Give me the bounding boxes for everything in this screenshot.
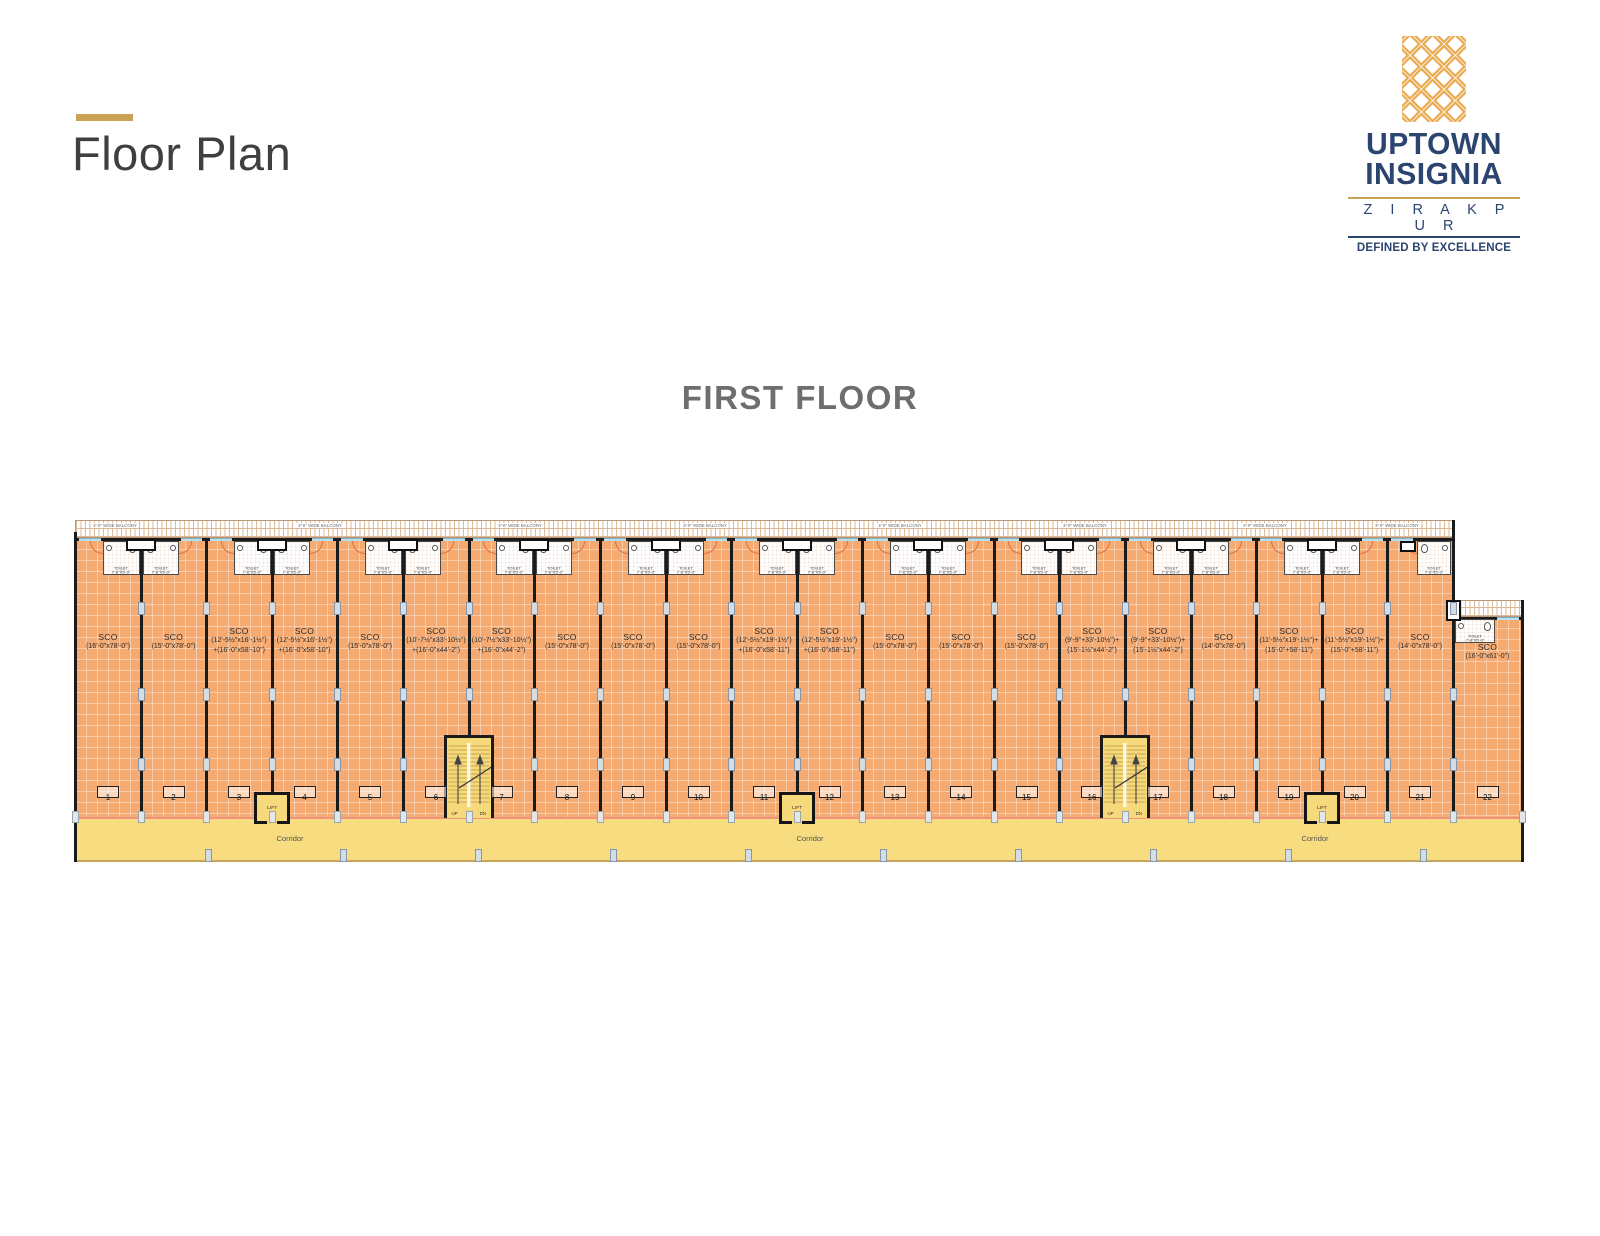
- unit-dimension: +(16'-0"x58'-10"): [201, 646, 277, 656]
- unit-type-label: SCO: [792, 626, 867, 636]
- wall: [205, 538, 208, 818]
- washbasin-icon: [893, 545, 899, 551]
- corridor-door-marker: [340, 849, 347, 862]
- unit-dimension: (15'-0"x78'-0"): [857, 642, 933, 652]
- unit-number: 9: [622, 786, 644, 798]
- unit-type-label: SCO: [464, 626, 539, 636]
- wall-fitting-marker: [1319, 688, 1326, 701]
- toilet-label-line2: 7'-6"X5'-0": [1425, 570, 1444, 574]
- brand-tagline: DEFINED BY EXCELLENCE: [1348, 242, 1520, 255]
- wall-fitting-marker: [1056, 758, 1063, 771]
- wall-end-cap: [203, 811, 210, 823]
- toilet-label: TOILET7'-6"X5'-0": [1332, 567, 1351, 575]
- wall-end-cap: [925, 811, 932, 823]
- wall-fitting-marker: [1122, 688, 1129, 701]
- wall-fitting-marker: [1450, 602, 1457, 615]
- unit-number-text: 11: [760, 793, 768, 802]
- wall-fitting-marker: [531, 602, 538, 615]
- logo-navy-rule: [1348, 236, 1520, 238]
- unit-number-text: 16: [1088, 793, 1097, 802]
- unit-dimension: (11'-5½"x19'-1½")+: [1251, 636, 1327, 646]
- toilet-room: TOILET7'-6"X5'-0": [1417, 541, 1451, 575]
- wall: [665, 538, 668, 818]
- unit-number-text: 18: [1219, 793, 1228, 802]
- unit-label: SCO(15'-0"x78'-0"): [332, 632, 408, 652]
- toilet-label: TOILET7'-6"X5'-0": [282, 567, 301, 575]
- unit-number: 4: [294, 786, 316, 798]
- wc-icon: [1421, 544, 1428, 553]
- wall-fitting-marker: [1384, 602, 1391, 615]
- corridor-door-marker: [1150, 849, 1157, 862]
- wall-fitting-marker: [334, 602, 341, 615]
- wall-fitting-marker: [138, 688, 145, 701]
- unit-number: 3: [228, 786, 250, 798]
- toilet-label: TOILET7'-6"X5'-0": [899, 567, 918, 575]
- unit-dimension: (15'-0"+58'-11"): [1251, 646, 1327, 656]
- balcony-strip-unit22: [1455, 600, 1522, 617]
- unit-number-text: 6: [434, 793, 438, 802]
- unit-dimension: +(16'-0"x58'-11"): [726, 646, 802, 656]
- unit-type-label: SCO: [989, 632, 1064, 642]
- toilet-label: TOILET7'-6"X5'-0": [1425, 567, 1444, 575]
- wall-end-cap: [663, 811, 670, 823]
- wall-fitting-marker: [1450, 758, 1457, 771]
- page: Floor Plan UPTOWN INSIGNIA Z I R A K P U…: [0, 0, 1600, 1236]
- balcony-label: 3'-0" WIDE BALCONY: [496, 523, 543, 528]
- unit-label: SCO(16'-0"x78'-0"): [70, 632, 146, 652]
- wall-fitting-marker: [794, 688, 801, 701]
- unit-type-label: SCO: [70, 632, 146, 642]
- unit-1: [75, 538, 141, 818]
- unit-label: SCO(11'-5½"x19'-1½")+(15'-0"+58'-11"): [1251, 626, 1327, 655]
- wall-fitting-marker: [991, 688, 998, 701]
- wall: [993, 538, 996, 818]
- toilet-label: TOILET7'-6"X5'-0": [637, 567, 656, 575]
- balcony-label: 3'-0" WIDE BALCONY: [1241, 523, 1288, 528]
- washbasin-icon: [1088, 545, 1094, 551]
- toilet-label-line2: 7'-6"X5'-0": [637, 570, 656, 574]
- window-box: [1307, 539, 1337, 551]
- unit-3: [206, 538, 272, 818]
- toilet-label: TOILET7'-6"X5'-0": [1293, 567, 1312, 575]
- toilet-label: TOILET7'-6"X5'-0": [413, 567, 432, 575]
- unit-5: [337, 538, 403, 818]
- wall-fitting-marker: [663, 602, 670, 615]
- unit-dimension: (15'-0"x78'-0"): [989, 642, 1064, 652]
- wc-icon: [1484, 622, 1491, 631]
- washbasin-icon: [695, 545, 701, 551]
- wall-end-cap: [1122, 811, 1129, 823]
- wall: [140, 538, 143, 818]
- washbasin-icon: [170, 545, 176, 551]
- wall-end-cap: [1253, 811, 1260, 823]
- wall-fitting-marker: [859, 758, 866, 771]
- wall-end-cap: [531, 811, 538, 823]
- unit-dimension: (10'-7½"x33'-10½"): [398, 636, 474, 646]
- unit-dimension: (12'-5½"x16'-1½"): [267, 636, 342, 646]
- window-box: [782, 539, 812, 551]
- toilet-label: TOILET7'-6"X5'-0": [505, 567, 524, 575]
- wall-fitting-marker: [400, 688, 407, 701]
- wall-fitting-marker: [1188, 758, 1195, 771]
- unit-number: 19: [1278, 786, 1300, 798]
- unit-type-label: SCO: [857, 632, 933, 642]
- unit-type-label: SCO: [529, 632, 605, 642]
- corridor-door-marker: [1420, 849, 1427, 862]
- wall-fitting-marker: [1319, 758, 1326, 771]
- unit-number-text: 8: [565, 793, 569, 802]
- unit-dimension: (11'-5½"x19'-1½")+: [1317, 636, 1392, 646]
- unit-label: SCO(15'-0"x78'-0"): [989, 632, 1064, 652]
- washbasin-icon: [237, 545, 243, 551]
- wall-fitting-marker: [1253, 758, 1260, 771]
- toilet-label: TOILET7'-6"X5'-0": [807, 567, 826, 575]
- unit-type-label: SCO: [1382, 632, 1458, 642]
- stair-dn-label: DN: [1136, 811, 1142, 816]
- wall-fitting-marker: [794, 602, 801, 615]
- unit-number-text: 13: [891, 793, 900, 802]
- staircase: UPDN: [1100, 735, 1150, 818]
- unit-type-label: SCO: [201, 626, 277, 636]
- unit-dimension: (12'-5½"x16'-1½"): [201, 636, 277, 646]
- toilet-label: TOILET7'-6"X5'-0": [676, 567, 695, 575]
- unit-dimension: (15'-1½"x44'-2"): [1054, 646, 1130, 656]
- wall-end-cap: [466, 811, 473, 823]
- unit-label: SCO(12'-5½"x19'-1½")+(16'-0"x58'-11"): [726, 626, 802, 655]
- unit-type-label: SCO: [1120, 626, 1196, 636]
- unit-number: 13: [884, 786, 906, 798]
- wall-end-cap: [1450, 811, 1457, 823]
- wall-end-cap: [334, 811, 341, 823]
- wall-fitting-marker: [531, 758, 538, 771]
- unit-number: 6: [425, 786, 447, 798]
- wall-fitting-marker: [466, 688, 473, 701]
- wall-fitting-marker: [269, 758, 276, 771]
- brand-name-line1: UPTOWN: [1351, 129, 1518, 159]
- washbasin-icon: [1220, 545, 1226, 551]
- window-box: [913, 539, 943, 551]
- unit-type-label: SCO: [1186, 632, 1261, 642]
- toilet-label-line2: 7'-6"X5'-0": [544, 570, 563, 574]
- toilet-label-line2: 7'-6"X5'-0": [1162, 570, 1181, 574]
- unit-dimension: (16'-0"x61'-0"): [1448, 652, 1527, 662]
- wall-fitting-marker: [203, 758, 210, 771]
- wall-fitting-marker: [466, 602, 473, 615]
- wall-end-cap: [138, 811, 145, 823]
- unit-11: [731, 538, 797, 818]
- wall-fitting-marker: [531, 688, 538, 701]
- unit-9: [600, 538, 666, 818]
- window-box: [388, 539, 418, 551]
- unit-type-label: SCO: [267, 626, 342, 636]
- unit-dimension: +(16'-0"x58'-11"): [792, 646, 867, 656]
- wall-fitting-marker: [859, 688, 866, 701]
- wall-end-cap: [269, 811, 276, 823]
- balcony-label: 3'-0" WIDE BALCONY: [91, 523, 138, 528]
- wall-end-cap: [728, 811, 735, 823]
- unit-number: 17: [1147, 786, 1169, 798]
- unit-label: SCO(15'-0"x78'-0"): [595, 632, 671, 652]
- washbasin-icon: [1458, 623, 1464, 629]
- wall-end-cap: [794, 811, 801, 823]
- stair-up-label: UP: [1108, 811, 1114, 816]
- unit-type-label: SCO: [1054, 626, 1130, 636]
- unit-dimension: (9'-9"+33'-10½")+: [1054, 636, 1130, 646]
- toilet-label-line2: 7'-6"X5'-0": [899, 570, 918, 574]
- wall-fitting-marker: [728, 688, 735, 701]
- unit-label: SCO(15'-0"x78'-0"): [857, 632, 933, 652]
- toilet-label: TOILET7'-6"X5'-0": [1030, 567, 1049, 575]
- toilet-label: TOILET7'-6"X5'-0": [1466, 635, 1485, 643]
- toilet-label-line2: 7'-6"X5'-0": [1069, 570, 1088, 574]
- unit-19: [1256, 538, 1322, 818]
- unit-type-label: SCO: [923, 632, 999, 642]
- wall-fitting-marker: [1122, 602, 1129, 615]
- unit-dimension: (15'-0"x78'-0"): [923, 642, 999, 652]
- wall-fitting-marker: [859, 602, 866, 615]
- wall-fitting-marker: [925, 602, 932, 615]
- unit-number: 15: [1016, 786, 1038, 798]
- washbasin-icon: [1156, 545, 1162, 551]
- balcony-label: 3'-0" WIDE BALCONY: [681, 523, 728, 528]
- washbasin-icon: [301, 545, 307, 551]
- corridor-door-marker: [1015, 849, 1022, 862]
- wall-fitting-marker: [400, 602, 407, 615]
- unit-number: 12: [819, 786, 841, 798]
- toilet-label: TOILET7'-6"X5'-0": [938, 567, 957, 575]
- unit-label: SCO(10'-7½"x33'-10½")+(16'-0"x44'-2"): [398, 626, 474, 655]
- wall-fitting-marker: [1253, 688, 1260, 701]
- wall-fitting-marker: [334, 688, 341, 701]
- toilet-label-line2: 7'-6"X5'-0": [807, 570, 826, 574]
- corridor-door-marker: [1285, 849, 1292, 862]
- unit-dimension: (15'-0"x78'-0"): [136, 642, 211, 652]
- wall-end-cap: [1056, 811, 1063, 823]
- wall-fitting-marker: [1450, 688, 1457, 701]
- unit-dimension: (15'-0"x78'-0"): [595, 642, 671, 652]
- unit-14: [928, 538, 994, 818]
- toilet-label: TOILET7'-6"X5'-0": [243, 567, 262, 575]
- unit-dimension: (15'-0"x78'-0"): [529, 642, 605, 652]
- wall-end-cap: [72, 811, 79, 823]
- toilet-label: TOILET7'-6"X5'-0": [768, 567, 787, 575]
- wall-end-cap: [1384, 811, 1391, 823]
- wall-end-cap: [1319, 811, 1326, 823]
- wall: [1058, 538, 1061, 818]
- wall-fitting-marker: [1188, 688, 1195, 701]
- balcony-window: [1497, 617, 1519, 619]
- unit-number: 2: [163, 786, 185, 798]
- unit-label: SCO(12'-5½"x19'-1½")+(16'-0"x58'-11"): [792, 626, 867, 655]
- wall: [796, 538, 799, 792]
- toilet-label-line2: 7'-6"X5'-0": [243, 570, 262, 574]
- window-box: [519, 539, 549, 551]
- unit-number-text: 10: [694, 793, 703, 802]
- washbasin-icon: [499, 545, 505, 551]
- unit-number-text: 5: [368, 793, 372, 802]
- washbasin-icon: [106, 545, 112, 551]
- wall: [1190, 538, 1193, 818]
- wall-fitting-marker: [728, 758, 735, 771]
- window-box: [126, 539, 156, 551]
- unit-number-text: 20: [1350, 793, 1359, 802]
- washbasin-icon: [1024, 545, 1030, 551]
- unit-number: 1: [97, 786, 119, 798]
- unit-label: SCO(14'-0"x78'-0"): [1382, 632, 1458, 652]
- unit-number-text: 1: [106, 793, 110, 802]
- window-box: [1400, 541, 1416, 552]
- wall-fitting-marker: [991, 758, 998, 771]
- unit-4: [272, 538, 337, 818]
- unit-label: SCO(16'-0"x61'-0"): [1448, 642, 1527, 662]
- unit-dimension: (12'-5½"x19'-1½"): [792, 636, 867, 646]
- unit-2: [141, 538, 206, 818]
- wall: [533, 538, 536, 818]
- unit-number-text: 7: [499, 793, 503, 802]
- wall: [861, 538, 864, 818]
- unit-number-text: 21: [1416, 793, 1425, 802]
- unit-dimension: (14'-0"x78'-0"): [1186, 642, 1261, 652]
- corridor-label: Corridor: [796, 834, 823, 843]
- toilet-label-line2: 7'-6"X5'-0": [282, 570, 301, 574]
- unit-number: 11: [753, 786, 775, 798]
- unit-dimension: (12'-5½"x19'-1½"): [726, 636, 802, 646]
- unit-type-label: SCO: [1251, 626, 1327, 636]
- toilet-label-line2: 7'-6"X5'-0": [112, 570, 131, 574]
- toilet-label-line2: 7'-6"X5'-0": [505, 570, 524, 574]
- unit-number-text: 14: [957, 793, 966, 802]
- corridor-label: Corridor: [276, 834, 303, 843]
- unit-label: SCO(15'-0"x78'-0"): [923, 632, 999, 652]
- unit-20: [1322, 538, 1387, 818]
- wall-end-cap: [1519, 811, 1526, 823]
- wall-fitting-marker: [794, 758, 801, 771]
- unit-number: 18: [1213, 786, 1235, 798]
- unit-number: 10: [688, 786, 710, 798]
- unit-label: SCO(12'-5½"x16'-1½")+(16'-0"x58'-10"): [201, 626, 277, 655]
- window-box: [257, 539, 287, 551]
- toilet-label: TOILET7'-6"X5'-0": [544, 567, 563, 575]
- stair-dn-label: DN: [480, 811, 486, 816]
- wall: [1386, 538, 1389, 818]
- unit-number-text: 3: [237, 793, 241, 802]
- unit-number: 20: [1344, 786, 1366, 798]
- wall: [927, 538, 930, 818]
- unit-label: SCO(15'-0"x78'-0"): [661, 632, 736, 652]
- wall: [599, 538, 602, 818]
- window-box: [1176, 539, 1206, 551]
- unit-number-text: 9: [631, 793, 635, 802]
- toilet-label-line2: 7'-6"X5'-0": [1201, 570, 1220, 574]
- balcony-label: 3'-0" WIDE BALCONY: [1373, 523, 1420, 528]
- unit-dimension: (9'-9"+33'-10½")+: [1120, 636, 1196, 646]
- unit-number-text: 12: [825, 793, 834, 802]
- wall: [271, 538, 274, 792]
- unit-number-text: 22: [1483, 793, 1492, 802]
- toilet-label-line2: 7'-6"X5'-0": [151, 570, 170, 574]
- logo-lattice-icon: [1402, 36, 1466, 122]
- wall-fitting-marker: [1319, 602, 1326, 615]
- wall: [402, 538, 405, 818]
- unit-label: SCO(10'-7½"x33'-10½")+(16'-0"x44'-2"): [464, 626, 539, 655]
- unit-dimension: +(16'-0"x44'-2"): [464, 646, 539, 656]
- wall-fitting-marker: [663, 688, 670, 701]
- wall-fitting-marker: [663, 758, 670, 771]
- stair-up-label: UP: [452, 811, 458, 816]
- unit-label: SCO(9'-9"+33'-10½")+(15'-1½"x44'-2"): [1054, 626, 1130, 655]
- unit-dimension: (15'-0"+58'-11"): [1317, 646, 1392, 656]
- unit-number: 21: [1409, 786, 1431, 798]
- corridor-door-marker: [475, 849, 482, 862]
- wall-fitting-marker: [925, 758, 932, 771]
- washbasin-icon: [432, 545, 438, 551]
- wall-fitting-marker: [1056, 602, 1063, 615]
- unit-number-text: 17: [1154, 793, 1163, 802]
- unit-type-label: SCO: [332, 632, 408, 642]
- wall-fitting-marker: [269, 688, 276, 701]
- wall-fitting-marker: [1384, 758, 1391, 771]
- toilet-label: TOILET7'-6"X5'-0": [1162, 567, 1181, 575]
- toilet-label-line2: 7'-6"X5'-0": [1293, 570, 1312, 574]
- unit-number: 8: [556, 786, 578, 798]
- unit-number: 5: [359, 786, 381, 798]
- wall: [1321, 538, 1324, 792]
- brand-name-line2: INSIGNIA: [1351, 159, 1518, 189]
- wall-fitting-marker: [1056, 688, 1063, 701]
- unit-dimension: (15'-1½"x44'-2"): [1120, 646, 1196, 656]
- wall-end-cap: [1188, 811, 1195, 823]
- unit-8: [534, 538, 600, 818]
- balcony-label: 3'-0" WIDE BALCONY: [1061, 523, 1108, 528]
- unit-dimension: (10'-7½"x33'-10½"): [464, 636, 539, 646]
- toilet-label-line2: 7'-6"X5'-0": [1030, 570, 1049, 574]
- window-box: [651, 539, 681, 551]
- unit-label: SCO(12'-5½"x16'-1½")+(16'-0"x58'-10"): [267, 626, 342, 655]
- wall-fitting-marker: [925, 688, 932, 701]
- wall-fitting-marker: [1253, 602, 1260, 615]
- wall: [1255, 538, 1258, 818]
- corridor-door-marker: [880, 849, 887, 862]
- wall-fitting-marker: [597, 758, 604, 771]
- unit-number-text: 2: [171, 793, 175, 802]
- toilet-label-line2: 7'-6"X5'-0": [938, 570, 957, 574]
- page-title: Floor Plan: [72, 126, 291, 181]
- wall-end-cap: [991, 811, 998, 823]
- wall: [730, 538, 733, 818]
- washbasin-icon: [957, 545, 963, 551]
- unit-number: 16: [1081, 786, 1103, 798]
- toilet-label-line2: 7'-6"X5'-0": [374, 570, 393, 574]
- toilet-label: TOILET7'-6"X5'-0": [151, 567, 170, 575]
- unit-type-label: SCO: [661, 632, 736, 642]
- unit-number: 7: [491, 786, 513, 798]
- unit-dimension: +(16'-0"x44'-2"): [398, 646, 474, 656]
- wall-fitting-marker: [597, 688, 604, 701]
- unit-12: [797, 538, 862, 818]
- floor-title: FIRST FLOOR: [0, 379, 1600, 417]
- unit-dimension: (14'-0"x78'-0"): [1382, 642, 1458, 652]
- corridor-label: Corridor: [1301, 834, 1328, 843]
- unit-13: [862, 538, 928, 818]
- unit-21: [1387, 538, 1453, 818]
- toilet-label: TOILET7'-6"X5'-0": [112, 567, 131, 575]
- wall-fitting-marker: [1384, 688, 1391, 701]
- corridor-door-marker: [205, 849, 212, 862]
- unit-number-text: 4: [302, 793, 306, 802]
- logo-gold-rule: [1348, 197, 1520, 199]
- unit-label: SCO(14'-0"x78'-0"): [1186, 632, 1261, 652]
- washbasin-icon: [762, 545, 768, 551]
